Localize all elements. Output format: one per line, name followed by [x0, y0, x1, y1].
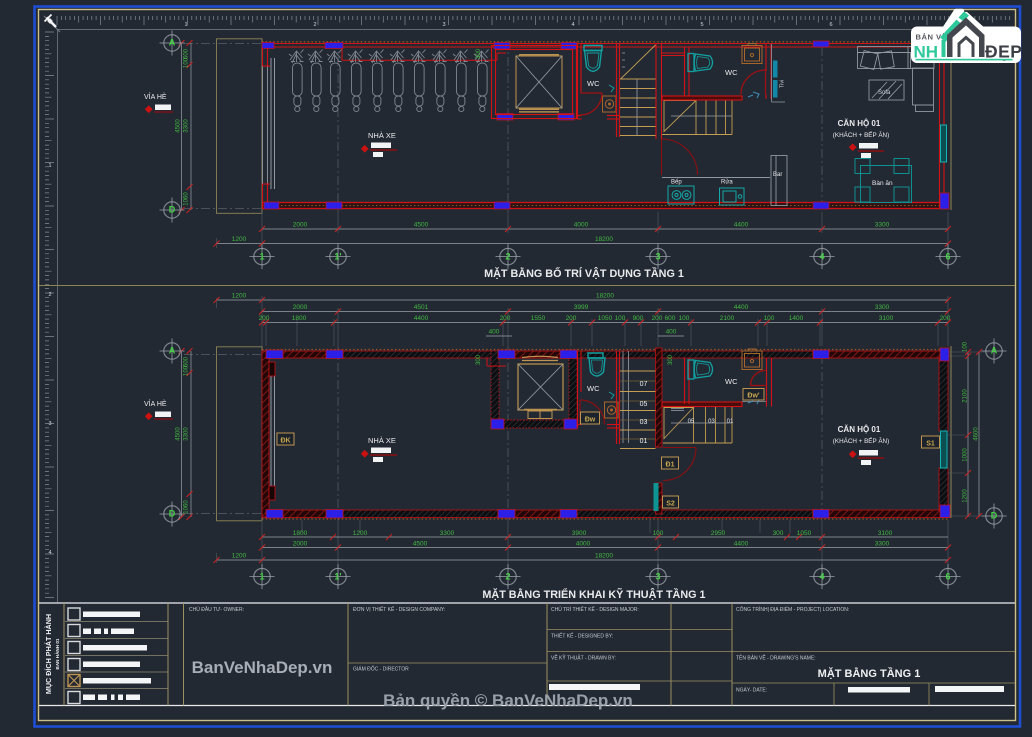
- svg-text:200: 200: [940, 315, 951, 322]
- svg-text:3300: 3300: [875, 222, 890, 229]
- svg-text:1200: 1200: [353, 530, 368, 537]
- svg-text:300: 300: [476, 48, 482, 59]
- svg-text:1800: 1800: [292, 315, 307, 322]
- svg-text:Bản quyền © BanVeNhaDep.vn: Bản quyền © BanVeNhaDep.vn: [383, 691, 633, 710]
- svg-text:1': 1': [334, 571, 341, 581]
- svg-text:A: A: [991, 346, 998, 356]
- svg-text:4: 4: [48, 550, 51, 556]
- svg-text:1: 1: [184, 22, 187, 28]
- svg-text:600: 600: [184, 48, 190, 59]
- svg-text:3300: 3300: [440, 530, 455, 537]
- svg-text:300: 300: [773, 530, 784, 537]
- svg-text:CHỦ TRÌ THIẾT KẾ - DESIGN MAJO: CHỦ TRÌ THIẾT KẾ - DESIGN MAJOR:: [551, 606, 639, 613]
- svg-text:1': 1': [334, 251, 341, 261]
- svg-text:4400: 4400: [734, 222, 749, 229]
- svg-text:3: 3: [655, 251, 660, 261]
- svg-text:Rửa: Rửa: [721, 179, 733, 186]
- svg-text:18200: 18200: [595, 553, 613, 560]
- svg-text:18200: 18200: [595, 236, 613, 243]
- svg-text:NGÀY- DATE:: NGÀY- DATE:: [736, 687, 767, 694]
- svg-text:1050: 1050: [598, 315, 613, 322]
- svg-text:100: 100: [184, 57, 190, 68]
- svg-text:1: 1: [48, 163, 51, 169]
- svg-text:ĐẸP: ĐẸP: [985, 42, 1022, 62]
- svg-text:D: D: [169, 509, 176, 519]
- svg-text:03: 03: [708, 419, 715, 425]
- svg-text:5: 5: [700, 22, 703, 28]
- svg-text:1060: 1060: [184, 500, 190, 514]
- svg-text:1800: 1800: [293, 530, 308, 537]
- svg-text:1000: 1000: [963, 448, 969, 462]
- svg-text:Bếp: Bếp: [671, 180, 682, 186]
- svg-text:1200: 1200: [232, 293, 247, 300]
- svg-text:CĂN HỘ 01: CĂN HỘ 01: [838, 425, 881, 434]
- svg-text:100: 100: [679, 315, 690, 322]
- svg-text:2: 2: [48, 292, 51, 298]
- svg-text:BAN HÀNH 01: BAN HÀNH 01: [54, 638, 60, 669]
- svg-text:1550: 1550: [531, 315, 546, 322]
- svg-text:Sofa: Sofa: [878, 90, 891, 96]
- svg-text:4500: 4500: [176, 427, 182, 441]
- svg-text:2100: 2100: [963, 389, 969, 403]
- svg-text:4600: 4600: [974, 427, 980, 441]
- svg-text:1400: 1400: [789, 315, 804, 322]
- svg-text:100: 100: [615, 315, 626, 322]
- svg-text:3300: 3300: [184, 427, 190, 441]
- svg-text:01: 01: [727, 419, 734, 425]
- svg-text:6: 6: [829, 22, 832, 28]
- svg-text:2: 2: [505, 571, 510, 581]
- svg-text:Bàn ăn: Bàn ăn: [872, 180, 893, 187]
- svg-text:VỈA HÈ: VỈA HÈ: [144, 399, 167, 408]
- svg-text:3300: 3300: [875, 304, 890, 311]
- svg-text:4: 4: [819, 571, 824, 581]
- svg-text:3: 3: [48, 421, 51, 427]
- svg-text:4: 4: [571, 22, 574, 28]
- svg-text:4400: 4400: [734, 541, 749, 548]
- svg-text:4000: 4000: [576, 541, 591, 548]
- svg-text:05: 05: [688, 419, 695, 425]
- svg-text:1: 1: [259, 571, 264, 581]
- svg-text:1: 1: [259, 251, 264, 261]
- svg-text:4400: 4400: [414, 315, 429, 322]
- svg-text:3300: 3300: [875, 541, 890, 548]
- svg-text:2000: 2000: [293, 222, 308, 229]
- svg-text:100: 100: [963, 341, 969, 352]
- svg-text:3100: 3100: [879, 315, 894, 322]
- svg-text:ĐK: ĐK: [280, 438, 290, 445]
- svg-text:3: 3: [442, 22, 445, 28]
- svg-text:300: 300: [668, 354, 674, 365]
- svg-text:6: 6: [945, 571, 950, 581]
- svg-text:900: 900: [633, 315, 644, 322]
- svg-text:Đw: Đw: [585, 417, 596, 424]
- svg-text:4000: 4000: [574, 222, 589, 229]
- svg-text:VỈA HÈ: VỈA HÈ: [144, 92, 167, 101]
- svg-text:600: 600: [184, 356, 190, 367]
- svg-text:1200: 1200: [963, 489, 969, 503]
- svg-text:1060: 1060: [184, 192, 190, 206]
- svg-text:BanVeNhaDep.vn: BanVeNhaDep.vn: [192, 658, 333, 677]
- svg-text:WC: WC: [725, 377, 738, 386]
- svg-text:Bar: Bar: [773, 172, 782, 178]
- svg-text:3300: 3300: [184, 119, 190, 133]
- svg-text:WC: WC: [587, 79, 600, 88]
- svg-text:07: 07: [640, 381, 648, 388]
- svg-text:200: 200: [500, 315, 511, 322]
- svg-text:200: 200: [566, 315, 577, 322]
- svg-text:Tivi: Tivi: [780, 80, 786, 88]
- svg-text:200: 200: [259, 315, 270, 322]
- svg-text:2: 2: [505, 251, 510, 261]
- svg-text:01: 01: [640, 438, 648, 445]
- svg-text:D: D: [169, 205, 176, 215]
- svg-text:2000: 2000: [293, 304, 308, 311]
- svg-text:Đ1: Đ1: [666, 462, 675, 469]
- svg-text:400: 400: [489, 329, 500, 336]
- svg-text:MẶT BẰNG BỐ TRÍ VẬT DỤNG TẦNG: MẶT BẰNG BỐ TRÍ VẬT DỤNG TẦNG 1: [484, 266, 684, 280]
- svg-text:6: 6: [945, 251, 950, 261]
- svg-text:100: 100: [764, 315, 775, 322]
- svg-text:1200: 1200: [232, 236, 247, 243]
- svg-text:S2: S2: [666, 501, 675, 508]
- svg-text:1200: 1200: [232, 553, 247, 560]
- svg-text:4500: 4500: [414, 222, 429, 229]
- svg-text:MẶT BẰNG TẦNG 1: MẶT BẰNG TẦNG 1: [818, 667, 921, 680]
- svg-text:3900: 3900: [572, 530, 587, 537]
- svg-text:300: 300: [476, 354, 482, 365]
- svg-text:4500: 4500: [413, 541, 428, 548]
- svg-text:4400: 4400: [734, 304, 749, 311]
- svg-text:D: D: [991, 511, 998, 521]
- svg-text:CĂN HỘ 01: CĂN HỘ 01: [838, 119, 881, 128]
- svg-text:2100: 2100: [720, 315, 735, 322]
- svg-text:400: 400: [666, 329, 677, 336]
- svg-text:MẶT BẰNG TRIỂN KHAI KỸ THUẬT T: MẶT BẰNG TRIỂN KHAI KỸ THUẬT TẦNG 1: [482, 588, 705, 601]
- svg-text:VẼ KỸ THUẬT - DRAWN BY:: VẼ KỸ THUẬT - DRAWN BY:: [551, 655, 616, 662]
- svg-text:TÊN BẢN VẼ - DRAWING'S NAME:: TÊN BẢN VẼ - DRAWING'S NAME:: [736, 654, 816, 662]
- svg-text:3999: 3999: [574, 304, 589, 311]
- svg-text:100: 100: [184, 365, 190, 376]
- svg-text:WC: WC: [587, 384, 600, 393]
- svg-text:4501: 4501: [414, 304, 429, 311]
- svg-text:GIÁM ĐỐC - DIRECTOR: GIÁM ĐỐC - DIRECTOR: [353, 666, 409, 673]
- svg-text:05: 05: [640, 401, 648, 408]
- svg-text:2950: 2950: [711, 530, 726, 537]
- svg-text:4: 4: [819, 251, 824, 261]
- svg-text:A: A: [169, 38, 176, 48]
- svg-text:03: 03: [640, 419, 648, 426]
- svg-text:Đw': Đw': [747, 393, 760, 400]
- svg-text:2: 2: [313, 22, 316, 28]
- svg-text:3: 3: [655, 571, 660, 581]
- svg-text:NH: NH: [914, 43, 939, 62]
- svg-text:CÔNG TRÌNH| ĐỊA ĐIỂM - PROJECT: CÔNG TRÌNH| ĐỊA ĐIỂM - PROJECT| LOCATION…: [736, 606, 849, 613]
- svg-text:600: 600: [665, 315, 676, 322]
- svg-text:ĐƠN VỊ THIẾT KẾ - DESIGN COMPA: ĐƠN VỊ THIẾT KẾ - DESIGN COMPANY:: [353, 606, 445, 613]
- svg-text:2000: 2000: [293, 541, 308, 548]
- svg-text:100: 100: [653, 530, 664, 537]
- svg-text:1050: 1050: [797, 530, 812, 537]
- svg-text:A: A: [169, 346, 176, 356]
- svg-text:WC: WC: [725, 68, 738, 77]
- svg-text:18200: 18200: [596, 293, 614, 300]
- svg-text:3100: 3100: [878, 530, 893, 537]
- svg-text:200: 200: [652, 315, 663, 322]
- svg-text:MỤC ĐÍCH PHÁT HÀNH: MỤC ĐÍCH PHÁT HÀNH: [44, 614, 53, 694]
- svg-text:NHÀ XE: NHÀ XE: [368, 436, 396, 445]
- svg-text:4500: 4500: [176, 119, 182, 133]
- svg-text:S1: S1: [926, 441, 935, 448]
- svg-text:CHỦ ĐẦU TƯ- OWNER:: CHỦ ĐẦU TƯ- OWNER:: [189, 606, 244, 613]
- svg-text:NHÀ XE: NHÀ XE: [368, 131, 396, 140]
- svg-text:THIẾT KẾ - DESIGNED BY:: THIẾT KẾ - DESIGNED BY:: [551, 633, 613, 640]
